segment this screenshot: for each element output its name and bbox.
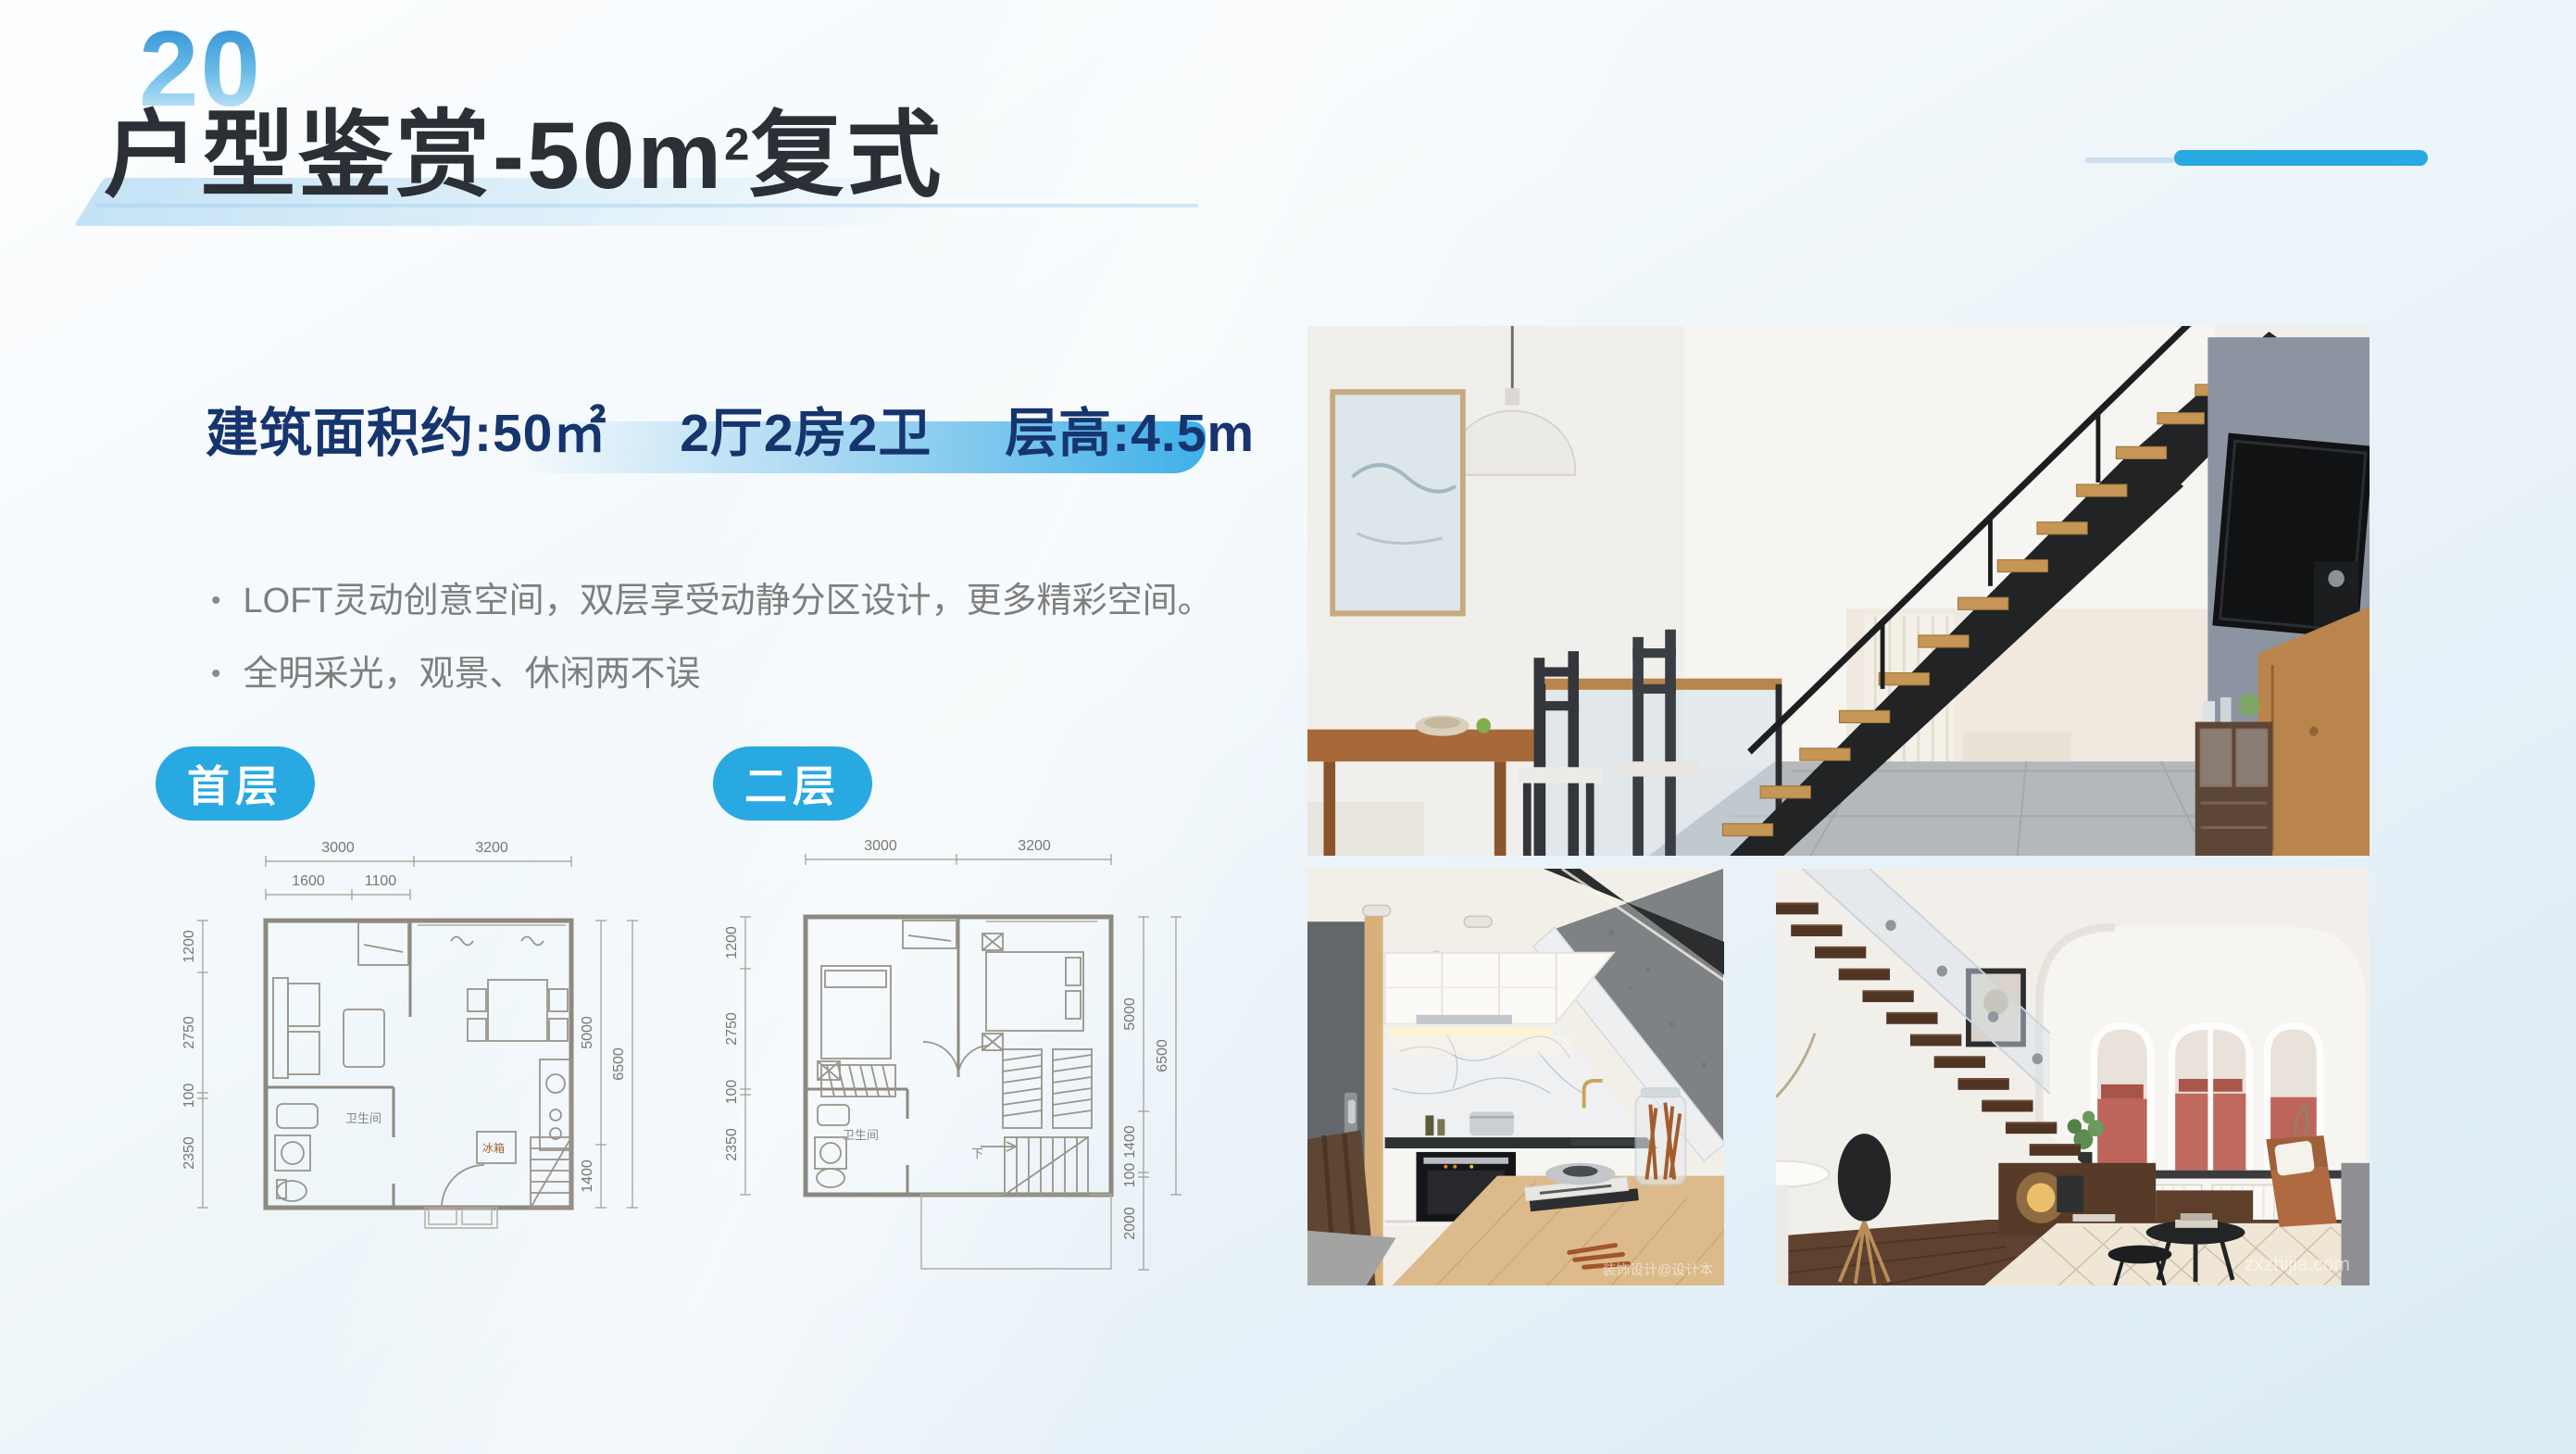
- bullet-list: •LOFT灵动创意空间，双层享受动静分区设计，更多精彩空间。 •全明采光，观景、…: [211, 576, 1322, 722]
- photo-interior-stairs: [1307, 326, 2370, 856]
- specs-banner: 建筑面积约:50㎡ 2厅2房2卫 层高:4.5m: [206, 391, 1261, 483]
- svg-text:6500: 6500: [1155, 1039, 1170, 1072]
- svg-text:3200: 3200: [475, 840, 508, 856]
- room-label-bathroom: 卫生间: [843, 1128, 879, 1142]
- svg-text:100: 100: [1122, 1163, 1138, 1188]
- svg-text:3000: 3000: [864, 838, 897, 854]
- title-accent-line: [2174, 150, 2428, 166]
- svg-text:1400: 1400: [580, 1159, 595, 1193]
- room-label-stairs-down: 下: [971, 1147, 983, 1160]
- svg-text:100: 100: [181, 1084, 197, 1109]
- room-label-fridge: 冰箱: [482, 1141, 505, 1155]
- floorplan-second: 3000 3200 1200 2750 100 2350 5000 1400 1…: [708, 832, 1227, 1295]
- bullet-text: LOFT灵动创意空间，双层享受动静分区设计，更多精彩空间。: [244, 582, 1213, 620]
- bullet-item: •LOFT灵动创意空间，双层享受动静分区设计，更多精彩空间。: [211, 576, 1322, 627]
- bullet-dot: •: [211, 658, 221, 689]
- page-title-sup: 2: [724, 120, 749, 170]
- svg-text:1600: 1600: [292, 873, 325, 889]
- svg-text:6500: 6500: [611, 1047, 627, 1081]
- watermark: 装饰设计@设计本: [1602, 1262, 1713, 1278]
- bullet-item: •全明采光，观景、休闲两不误: [211, 649, 1322, 700]
- room-label-bathroom: 卫生间: [345, 1111, 381, 1125]
- spec-rooms: 2厅2房2卫: [680, 404, 932, 463]
- svg-text:5000: 5000: [580, 1016, 595, 1049]
- tab-first-floor[interactable]: 首层: [156, 746, 315, 821]
- watermark: zxzhijia.com: [2245, 1253, 2350, 1275]
- spec-area: 建筑面积约:50㎡: [206, 404, 606, 463]
- slide: 20 户型鉴赏-50m2复式 建筑面积约:50㎡ 2厅2房2卫 层高:4.5m …: [0, 0, 2576, 1454]
- photo-living-room: zxzhijia.com: [1776, 869, 2370, 1285]
- bullet-text: 全明采光，观景、休闲两不误: [244, 655, 701, 694]
- bullet-dot: •: [211, 585, 221, 616]
- floorplan-first: 3000 3200 1600 1100 1200 2750 100 2350 5…: [162, 832, 662, 1267]
- page-title: 户型鉴赏-50m2复式: [104, 104, 944, 207]
- page-title-text: 户型鉴赏-50m: [104, 103, 724, 208]
- svg-text:1100: 1100: [365, 873, 397, 889]
- page-title-suffix: 复式: [749, 103, 944, 208]
- svg-text:3000: 3000: [321, 840, 355, 856]
- floorplan-first-walls: [266, 921, 571, 1208]
- svg-text:1200: 1200: [724, 926, 740, 959]
- svg-text:100: 100: [724, 1080, 740, 1105]
- svg-text:2750: 2750: [181, 1016, 197, 1049]
- photo-kitchen: 装饰设计@设计本: [1307, 869, 1724, 1285]
- floorplan-second-furniture: [815, 934, 1092, 1195]
- svg-text:5000: 5000: [1122, 997, 1138, 1031]
- spec-height: 层高:4.5m: [1005, 404, 1255, 463]
- tab-second-floor[interactable]: 二层: [713, 746, 872, 821]
- title-accent-line-thin: [2085, 157, 2182, 163]
- svg-text:2000: 2000: [1122, 1207, 1138, 1240]
- svg-text:3200: 3200: [1018, 838, 1051, 854]
- svg-text:1200: 1200: [181, 930, 197, 963]
- svg-text:1400: 1400: [1122, 1125, 1138, 1159]
- floorplan-first-furniture: [273, 937, 571, 1229]
- svg-text:2750: 2750: [724, 1012, 740, 1046]
- svg-text:2350: 2350: [181, 1136, 197, 1170]
- svg-text:2350: 2350: [724, 1128, 740, 1161]
